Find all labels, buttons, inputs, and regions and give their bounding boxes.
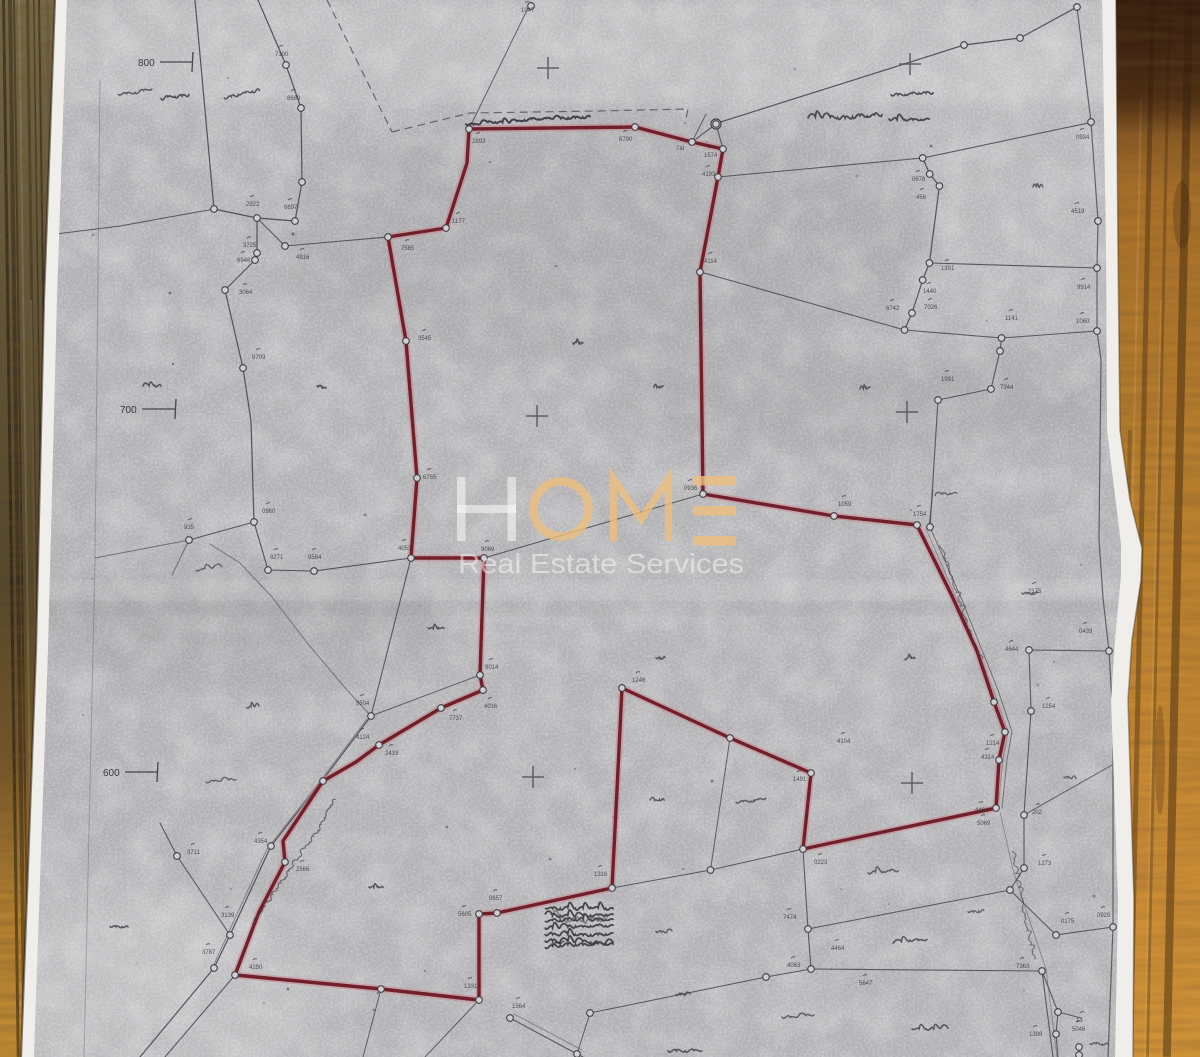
- svg-text:7474: 7474: [783, 915, 797, 921]
- svg-text:5069: 5069: [977, 821, 991, 827]
- svg-text:3064: 3064: [239, 290, 253, 296]
- svg-text:4644: 4644: [1005, 647, 1019, 653]
- svg-text:456: 456: [916, 195, 927, 201]
- svg-text:0929: 0929: [1097, 913, 1111, 919]
- svg-text:7344: 7344: [1000, 385, 1014, 391]
- svg-text:13: 13: [1076, 1018, 1083, 1024]
- svg-text:4314: 4314: [981, 755, 995, 761]
- svg-text:4193: 4193: [702, 172, 716, 178]
- svg-text:6697: 6697: [284, 205, 298, 211]
- svg-text:1060: 1060: [1076, 319, 1090, 325]
- svg-text:1754: 1754: [913, 512, 927, 518]
- svg-text:4016: 4016: [484, 704, 498, 710]
- svg-text:1059: 1059: [838, 502, 852, 508]
- svg-text:1273: 1273: [1038, 861, 1052, 867]
- svg-text:1564: 1564: [512, 1004, 526, 1010]
- svg-text:9014: 9014: [485, 665, 499, 671]
- svg-text:1491: 1491: [793, 777, 807, 783]
- svg-text:7al: 7al: [676, 146, 684, 152]
- svg-text:5046: 5046: [1072, 1027, 1086, 1033]
- svg-text:0439: 0439: [1079, 629, 1093, 635]
- svg-text:Real Estate Services: Real Estate Services: [458, 548, 744, 579]
- svg-text:700: 700: [120, 405, 137, 416]
- svg-text:4063: 4063: [787, 963, 801, 969]
- svg-text:9914: 9914: [1077, 285, 1091, 291]
- svg-text:1254: 1254: [1042, 704, 1056, 710]
- svg-text:7585: 7585: [401, 246, 415, 252]
- svg-text:6742: 6742: [886, 306, 900, 312]
- svg-text:1440: 1440: [923, 289, 937, 295]
- svg-text:0678: 0678: [912, 177, 926, 183]
- svg-text:7100: 7100: [275, 52, 289, 58]
- svg-text:1398: 1398: [1029, 1032, 1043, 1038]
- svg-text:8689: 8689: [287, 96, 301, 102]
- svg-text:0960: 0960: [262, 509, 276, 515]
- svg-text:0657: 0657: [489, 896, 503, 902]
- svg-text:7737: 7737: [449, 716, 463, 722]
- svg-text:202: 202: [1032, 810, 1043, 816]
- svg-text:7026: 7026: [924, 305, 938, 311]
- svg-text:3711: 3711: [187, 850, 201, 856]
- svg-text:4053: 4053: [398, 546, 412, 552]
- svg-text:3545: 3545: [418, 336, 432, 342]
- svg-text:8709: 8709: [252, 355, 266, 361]
- svg-text:8271: 8271: [270, 555, 284, 561]
- svg-text:5605: 5605: [458, 912, 472, 918]
- svg-text:8790: 8790: [619, 137, 633, 143]
- svg-text:0936: 0936: [684, 486, 698, 492]
- svg-text:5647: 5647: [859, 981, 873, 987]
- svg-text:4250: 4250: [249, 965, 263, 971]
- svg-text:3725: 3725: [243, 243, 257, 249]
- svg-text:800: 800: [138, 58, 155, 69]
- svg-text:4124: 4124: [356, 735, 370, 741]
- svg-text:600: 600: [103, 768, 120, 779]
- svg-text:1214: 1214: [986, 741, 1000, 747]
- svg-text:4354: 4354: [254, 839, 268, 845]
- svg-text:2566: 2566: [296, 867, 310, 873]
- svg-text:6946: 6946: [237, 258, 251, 264]
- svg-text:0175: 0175: [1061, 919, 1075, 925]
- svg-text:1246: 1246: [632, 678, 646, 684]
- svg-text:2433: 2433: [385, 751, 399, 757]
- svg-text:935: 935: [184, 525, 195, 531]
- svg-text:4519: 4519: [1071, 209, 1085, 215]
- svg-text:4114: 4114: [704, 259, 718, 265]
- svg-text:4464: 4464: [975, 808, 989, 814]
- svg-text:3787: 3787: [202, 950, 216, 956]
- svg-text:0934: 0934: [1076, 135, 1090, 141]
- svg-text:1141: 1141: [1005, 316, 1019, 322]
- svg-text:7363: 7363: [1016, 964, 1030, 970]
- svg-text:1301: 1301: [941, 266, 955, 272]
- svg-text:1316: 1316: [594, 872, 608, 878]
- svg-text:9504: 9504: [356, 701, 370, 707]
- svg-text:9584: 9584: [308, 555, 322, 561]
- svg-text:1177: 1177: [452, 219, 466, 225]
- svg-text:0223: 0223: [814, 860, 828, 866]
- svg-text:4464: 4464: [831, 946, 845, 952]
- svg-text:4104: 4104: [837, 739, 851, 745]
- svg-text:1047: 1047: [521, 8, 535, 14]
- svg-text:1991: 1991: [941, 377, 955, 383]
- svg-text:1331: 1331: [464, 984, 478, 990]
- svg-text:1574: 1574: [704, 153, 718, 159]
- svg-text:2922: 2922: [246, 202, 260, 208]
- svg-text:6755: 6755: [423, 475, 437, 481]
- svg-text:4916: 4916: [296, 255, 310, 261]
- svg-text:3139: 3139: [221, 913, 235, 919]
- svg-text:2893: 2893: [472, 139, 486, 145]
